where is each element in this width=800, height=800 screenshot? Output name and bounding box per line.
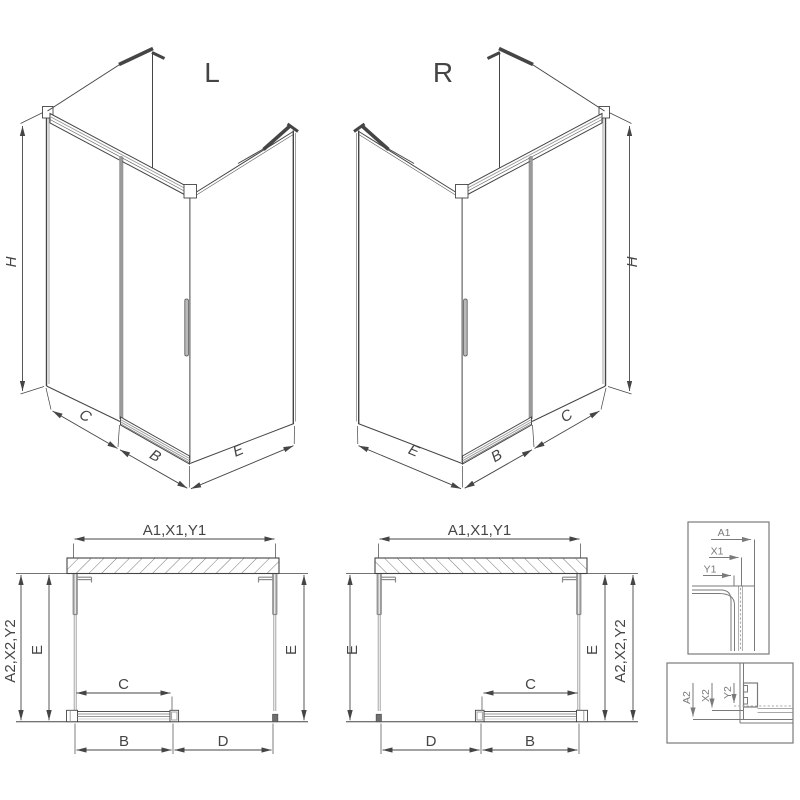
dim-label-b-left-iso: B: [147, 446, 164, 466]
dim-label-a2x2y2-right-plan: A2,X2,Y2: [612, 619, 629, 682]
dim-label-e-left-iso: E: [230, 441, 247, 461]
dim-label-e-left-right-plan: E: [344, 645, 361, 655]
technical-drawing-page: L H C B E R H E B C A1,X1,Y1 A2,X2,Y2 E …: [0, 0, 800, 800]
dim-label-d-right-plan: D: [426, 733, 437, 750]
dim-label-h-left-iso: H: [3, 256, 20, 267]
iso-label-r: R: [433, 57, 453, 88]
dim-label-a1x1y1-right-plan: A1,X1,Y1: [448, 522, 511, 539]
dim-label-e-inner-right-plan: E: [584, 645, 601, 655]
dim-label-e-inner-left-plan: E: [29, 645, 46, 655]
shower-enclosure-dimension-drawing: L H C B E R H E B C A1,X1,Y1 A2,X2,Y2 E …: [0, 0, 800, 800]
dim-label-d-left-plan: D: [218, 733, 229, 750]
iso-view-right: R H E B C: [354, 49, 641, 489]
dim-label-c-right-iso: C: [558, 406, 576, 426]
detail-label-x2: X2: [700, 689, 712, 702]
iso-view-left: L H C B E: [3, 49, 298, 489]
dim-label-e-right-left-plan: E: [283, 645, 300, 655]
dim-label-h-right-iso: H: [624, 256, 641, 267]
iso-label-l: L: [204, 57, 220, 88]
detail-label-x1: X1: [711, 546, 724, 558]
detail-label-a2: A2: [681, 691, 693, 704]
dim-label-c-right-plan: C: [525, 676, 536, 693]
detail-label-a1: A1: [718, 527, 731, 539]
plan-view-right: A1,X1,Y1 E E A2,X2,Y2 C D B: [344, 522, 638, 754]
detail-label-y1: Y1: [704, 564, 717, 576]
dim-label-c-left-plan: C: [118, 676, 129, 693]
plan-view-left: A1,X1,Y1 A2,X2,Y2 E E C B D: [2, 522, 308, 754]
dim-label-e-right-iso: E: [406, 441, 423, 461]
dim-label-b-right-plan: B: [525, 733, 535, 750]
dim-label-a2x2y2-left-plan: A2,X2,Y2: [2, 619, 19, 682]
detail-label-y2: Y2: [722, 686, 734, 699]
detail-view-bottom-rail: A2 X2 Y2: [667, 663, 793, 743]
dim-label-b-left-plan: B: [119, 733, 129, 750]
dim-label-a1x1y1-left-plan: A1,X1,Y1: [143, 522, 206, 539]
dim-label-b-right-iso: B: [488, 446, 505, 466]
dim-label-c-left-iso: C: [76, 406, 94, 426]
detail-view-top-profile: A1 X1 Y1: [688, 522, 769, 654]
